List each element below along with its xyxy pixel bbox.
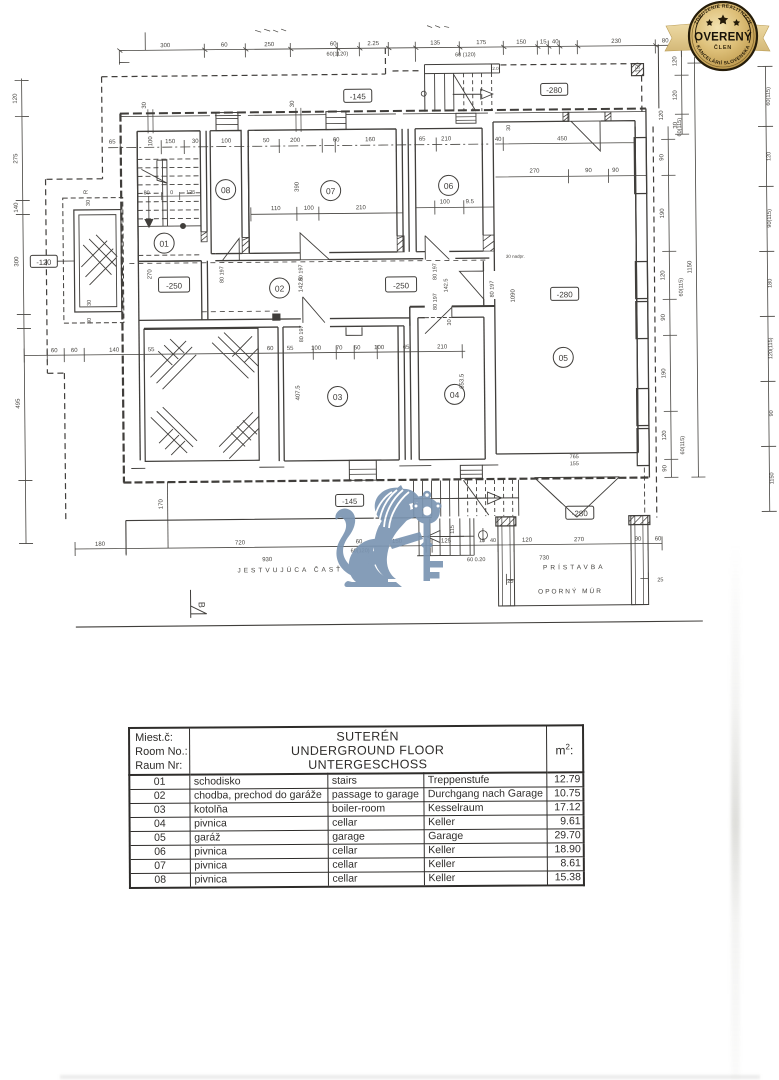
svg-text:70: 70	[336, 345, 343, 351]
svg-text:190: 190	[660, 208, 666, 219]
svg-text:120: 120	[766, 152, 772, 161]
svg-text:90(115): 90(115)	[767, 209, 773, 228]
svg-text:80 197: 80 197	[298, 264, 304, 281]
svg-text:60(115): 60(115)	[766, 87, 772, 106]
svg-text:60: 60	[655, 536, 662, 542]
svg-text:135: 135	[430, 40, 441, 46]
svg-text:ČLEN: ČLEN	[714, 44, 732, 51]
svg-text:80 197: 80 197	[219, 266, 225, 283]
svg-text:60: 60	[221, 43, 228, 49]
svg-text:30: 30	[506, 125, 512, 131]
svg-text:90: 90	[585, 168, 592, 174]
svg-text:300: 300	[160, 43, 171, 49]
svg-text:0: 0	[170, 190, 173, 196]
svg-text:100: 100	[440, 199, 451, 205]
svg-text:60: 60	[267, 346, 274, 352]
svg-text:160: 160	[365, 137, 376, 143]
svg-text:170: 170	[159, 499, 165, 510]
svg-text:30: 30	[447, 319, 453, 325]
svg-text:720: 720	[235, 540, 246, 546]
svg-text:180: 180	[768, 279, 774, 288]
svg-text:40: 40	[495, 137, 502, 143]
svg-text:2.0: 2.0	[492, 66, 499, 71]
svg-text:65: 65	[419, 137, 426, 143]
svg-text:04: 04	[450, 390, 460, 400]
svg-text:100: 100	[374, 345, 385, 351]
svg-text:250: 250	[264, 42, 275, 48]
svg-text:55: 55	[148, 347, 155, 353]
svg-text:40: 40	[552, 39, 559, 45]
svg-text:80 197: 80 197	[433, 293, 439, 310]
svg-text:60: 60	[333, 137, 340, 143]
svg-text:30 nadpr.: 30 nadpr.	[506, 254, 525, 259]
svg-text:155: 155	[570, 461, 579, 467]
svg-text:270: 270	[529, 169, 540, 175]
svg-text:275: 275	[13, 153, 19, 164]
svg-text:60: 60	[330, 41, 337, 47]
svg-text:90: 90	[769, 410, 775, 416]
svg-text:80: 80	[144, 190, 150, 196]
svg-text:390: 390	[295, 181, 301, 192]
svg-text:65: 65	[109, 140, 116, 146]
svg-text:140: 140	[109, 348, 120, 354]
svg-text:30: 30	[87, 318, 93, 324]
svg-text:450: 450	[557, 136, 568, 142]
svg-text:200: 200	[290, 138, 301, 144]
svg-text:06: 06	[444, 181, 454, 191]
svg-text:-250: -250	[393, 281, 410, 290]
svg-text:-280: -280	[572, 509, 589, 518]
svg-text:210: 210	[356, 205, 367, 211]
svg-text:30: 30	[192, 139, 199, 145]
svg-text:190: 190	[661, 368, 667, 379]
svg-text:270: 270	[574, 537, 585, 543]
svg-text:07: 07	[326, 186, 336, 196]
svg-text:60(115): 60(115)	[677, 118, 683, 137]
svg-text:25: 25	[657, 577, 663, 583]
svg-text:100: 100	[311, 346, 322, 352]
svg-text:150: 150	[635, 62, 641, 73]
svg-text:1150: 1150	[769, 472, 775, 484]
svg-text:120: 120	[522, 538, 533, 544]
svg-text:120: 120	[662, 430, 668, 441]
svg-text:60 0.20: 60 0.20	[467, 557, 485, 563]
svg-text:120: 120	[13, 93, 19, 104]
svg-text:30: 30	[142, 101, 148, 108]
svg-text:90: 90	[662, 464, 668, 471]
svg-text:60: 60	[71, 348, 78, 354]
svg-text:9.5: 9.5	[466, 199, 475, 205]
svg-text:210: 210	[441, 136, 452, 142]
svg-text:-120: -120	[36, 258, 51, 267]
svg-text:140: 140	[14, 202, 20, 213]
svg-text:15: 15	[479, 538, 485, 544]
svg-text:-280: -280	[546, 86, 563, 95]
svg-text:65: 65	[403, 345, 410, 351]
svg-text:40: 40	[490, 538, 496, 544]
svg-text:300: 300	[14, 256, 20, 267]
svg-text:1090: 1090	[511, 288, 517, 302]
svg-text:120(115): 120(115)	[768, 337, 774, 359]
svg-text:180: 180	[95, 542, 106, 548]
svg-text:175: 175	[476, 40, 487, 46]
svg-text:60: 60	[51, 348, 58, 354]
svg-text:150: 150	[516, 40, 527, 46]
svg-text:08: 08	[221, 185, 231, 195]
svg-text:120: 120	[660, 270, 666, 281]
svg-text:142.5: 142.5	[444, 279, 450, 293]
svg-text:150: 150	[165, 139, 176, 145]
svg-text:1150: 1150	[687, 260, 693, 274]
svg-text:2.25: 2.25	[367, 41, 379, 47]
svg-text:PRÍSTAVBA: PRÍSTAVBA	[543, 562, 606, 572]
svg-text:90: 90	[635, 537, 642, 543]
svg-text:15: 15	[540, 39, 547, 45]
svg-text:230: 230	[611, 39, 622, 45]
svg-text:-145: -145	[350, 92, 367, 101]
svg-text:30: 30	[290, 100, 296, 107]
svg-text:60(115): 60(115)	[679, 278, 685, 297]
svg-text:100: 100	[304, 206, 315, 212]
svg-text:60(1120): 60(1120)	[327, 51, 349, 57]
svg-text:80 197: 80 197	[490, 281, 496, 298]
svg-text:110: 110	[271, 206, 281, 212]
svg-text:JESTVUJÚCA ČASŤ: JESTVUJÚCA ČASŤ	[237, 564, 343, 574]
svg-text:80 197: 80 197	[299, 325, 305, 342]
svg-text:765: 765	[570, 454, 579, 460]
svg-text:02: 02	[275, 284, 285, 294]
svg-text:OPORNÝ MÚR: OPORNÝ MÚR	[538, 586, 603, 596]
svg-text:03: 03	[333, 392, 343, 402]
svg-text:407.5: 407.5	[296, 385, 302, 401]
svg-text:-280: -280	[557, 290, 574, 299]
svg-text:210: 210	[437, 344, 448, 350]
svg-text:80 197: 80 197	[432, 263, 438, 280]
svg-text:730: 730	[539, 555, 550, 561]
svg-text:05: 05	[558, 353, 568, 363]
svg-text:30: 30	[86, 200, 92, 206]
svg-text:50: 50	[354, 345, 361, 351]
svg-text:100: 100	[148, 136, 154, 147]
svg-text:120: 120	[659, 110, 665, 121]
svg-text:90: 90	[661, 313, 667, 320]
svg-text:25: 25	[507, 579, 513, 585]
svg-text:60(115): 60(115)	[680, 436, 686, 455]
svg-text:55: 55	[287, 346, 294, 352]
svg-text:-250: -250	[166, 281, 183, 290]
svg-text:100: 100	[221, 139, 232, 145]
svg-text:50: 50	[263, 138, 270, 144]
svg-text:B: B	[197, 602, 207, 608]
svg-text:125: 125	[186, 190, 195, 196]
svg-text:OVERENÝ: OVERENÝ	[694, 31, 752, 44]
svg-text:30: 30	[87, 300, 93, 306]
svg-text:930: 930	[262, 557, 273, 563]
svg-text:01: 01	[159, 239, 169, 249]
svg-text:270: 270	[147, 269, 153, 280]
svg-text:60 (120): 60 (120)	[455, 52, 476, 58]
svg-text:R: R	[84, 189, 90, 194]
svg-text:495: 495	[16, 398, 22, 409]
svg-text:120: 120	[673, 90, 679, 101]
svg-text:90: 90	[612, 168, 619, 174]
svg-text:90: 90	[659, 153, 665, 160]
